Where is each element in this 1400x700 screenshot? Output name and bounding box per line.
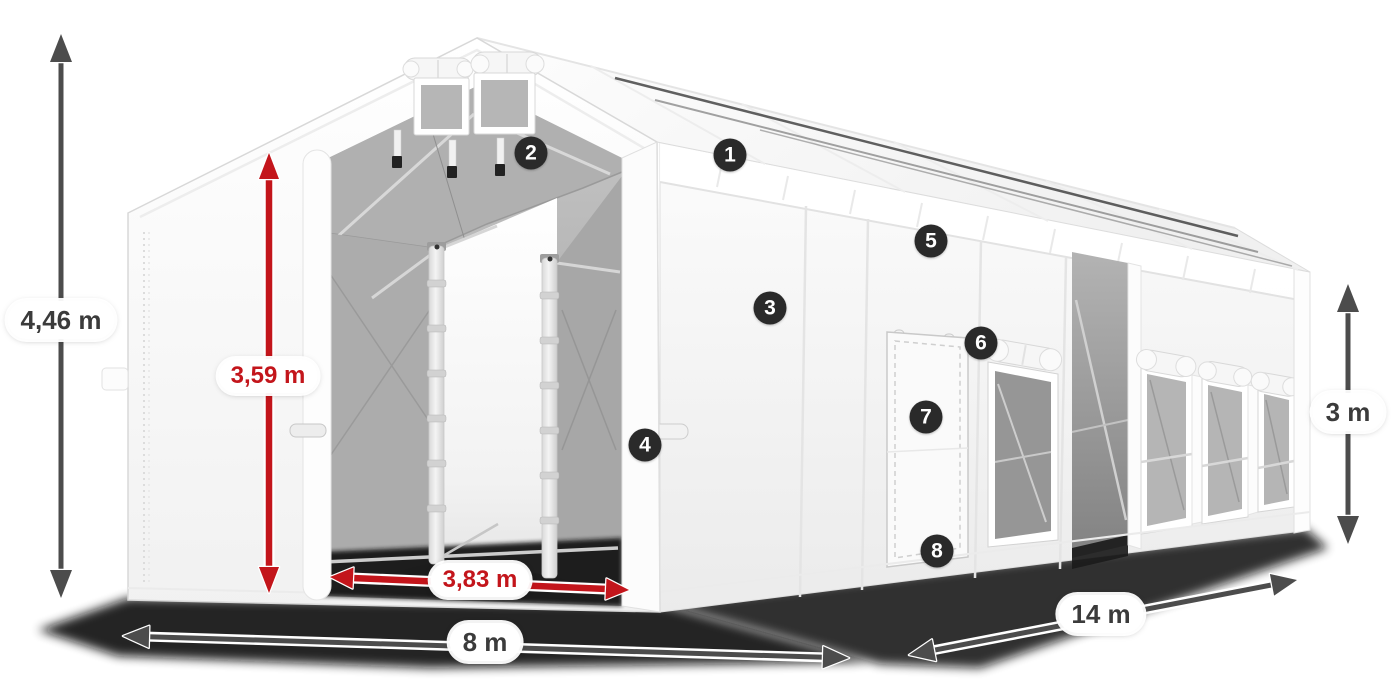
side-door bbox=[887, 330, 968, 567]
callout-1: 1 bbox=[714, 139, 747, 172]
side-window-far-2 bbox=[1197, 359, 1254, 524]
callout-7: 7 bbox=[910, 401, 943, 434]
panel-separator bbox=[1128, 263, 1141, 549]
front-door-handle bbox=[290, 424, 326, 437]
front-right-corner-panel bbox=[622, 142, 660, 612]
callout-3: 3 bbox=[754, 292, 787, 325]
dimension-label-total-height: 4,46 m bbox=[8, 301, 115, 339]
callout-6: 6 bbox=[965, 327, 998, 360]
far-corner-post bbox=[1294, 269, 1310, 533]
tent-dimension-diagram: 4,46 m 3,59 m 3,83 m 8 m 14 m 3 m 1 2 3 … bbox=[0, 0, 1400, 700]
callout-5: 5 bbox=[915, 225, 948, 258]
dimension-label-entrance-height: 3,59 m bbox=[219, 359, 318, 393]
dimension-label-front-width: 8 m bbox=[450, 623, 521, 661]
entrance-opening bbox=[320, 86, 622, 606]
gable-vent-right bbox=[471, 52, 544, 134]
corner-strap-tab bbox=[102, 368, 128, 390]
dimension-label-side-length: 14 m bbox=[1058, 595, 1143, 633]
tent-illustration bbox=[0, 0, 1400, 700]
side-open-gap bbox=[1072, 252, 1128, 569]
gable-vent-left bbox=[403, 58, 473, 135]
callout-4: 4 bbox=[629, 429, 662, 462]
dimension-label-side-wall-height: 3 m bbox=[1313, 393, 1384, 431]
panel-separator bbox=[1248, 385, 1258, 515]
dimension-label-entrance-width: 3,83 m bbox=[431, 563, 530, 597]
side-window-near bbox=[985, 338, 1064, 547]
panel-separator bbox=[1192, 375, 1202, 524]
entrance-left-door-leaf bbox=[320, 232, 433, 592]
callout-8: 8 bbox=[921, 535, 954, 568]
side-window-far-1 bbox=[1135, 348, 1198, 534]
callout-2: 2 bbox=[515, 137, 548, 170]
side-wall bbox=[648, 143, 1310, 612]
